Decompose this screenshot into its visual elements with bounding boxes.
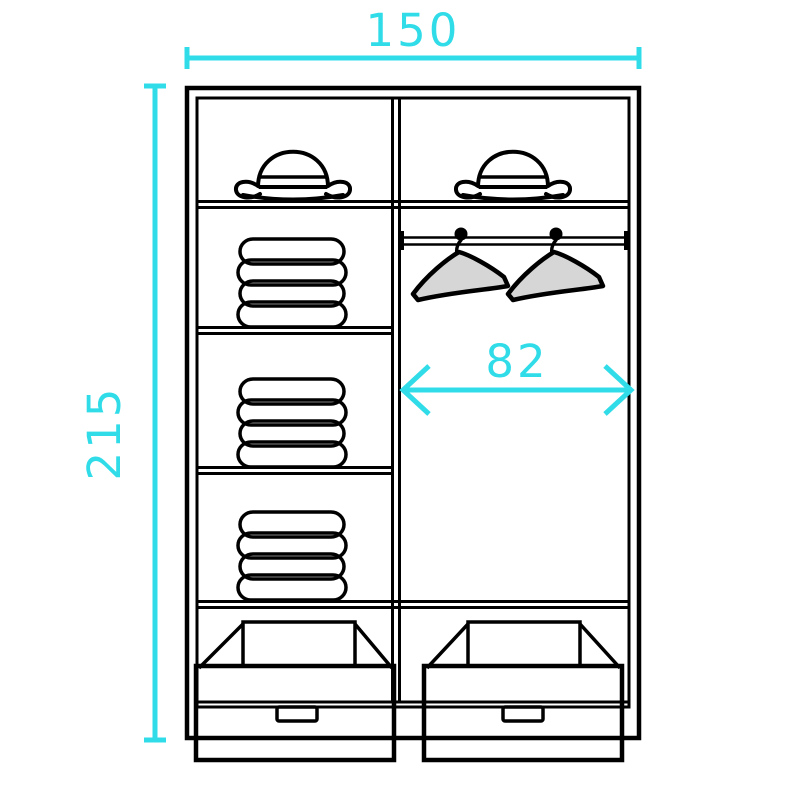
towel-stack-2 <box>238 379 346 467</box>
shelf-hat <box>197 202 629 208</box>
rod-bracket-right <box>624 231 629 250</box>
dimension-height-line <box>144 86 166 740</box>
towel-stack-3 <box>238 512 346 600</box>
drawer-back <box>243 622 355 666</box>
dimension-height-label: 215 <box>78 386 131 481</box>
drawer-handle <box>277 707 317 721</box>
dimension-hanging-width-label: 82 <box>485 335 548 388</box>
towel-stack-1 <box>238 239 346 327</box>
dimension-width-label: 150 <box>366 4 461 57</box>
wardrobe-diagram: 150 215 82 <box>0 0 800 785</box>
center-divider <box>393 98 400 702</box>
dimension-hanging-width: 82 <box>403 335 631 414</box>
rod-bar <box>402 238 628 245</box>
wardrobe-diagram-canvas: 150 215 82 <box>0 0 800 785</box>
bowler-hat-icon <box>456 152 570 200</box>
drawer-handle <box>503 707 543 721</box>
shelf-bottom <box>197 602 629 608</box>
hanging-rod <box>399 231 629 250</box>
drawer-back <box>468 622 580 666</box>
bowler-hat-icon <box>236 152 350 200</box>
dimension-height: 215 <box>78 86 166 740</box>
rod-bracket-left <box>399 231 404 250</box>
dimension-width: 150 <box>187 4 639 69</box>
